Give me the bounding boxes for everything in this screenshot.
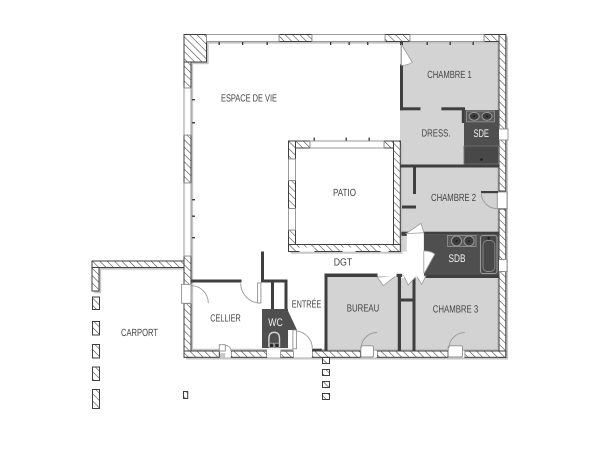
- svg-text:SDE: SDE: [473, 128, 489, 140]
- svg-text:BUREAU: BUREAU: [347, 304, 380, 315]
- svg-text:DGT: DGT: [334, 258, 353, 269]
- svg-text:CHAMBRE 3: CHAMBRE 3: [433, 305, 479, 316]
- svg-text:SDB: SDB: [449, 253, 466, 265]
- svg-text:ENTRÉE: ENTRÉE: [292, 298, 322, 311]
- svg-text:CHAMBRE 1: CHAMBRE 1: [427, 70, 472, 81]
- svg-text:PATIO: PATIO: [333, 188, 356, 199]
- svg-text:CARPORT: CARPORT: [121, 328, 158, 339]
- svg-text:ESPACE DE VIE: ESPACE DE VIE: [221, 94, 277, 105]
- svg-text:CHAMBRE 2: CHAMBRE 2: [431, 193, 476, 204]
- svg-text:DRESS.: DRESS.: [422, 129, 451, 140]
- svg-text:WC: WC: [268, 317, 283, 329]
- svg-text:CELLIER: CELLIER: [210, 314, 241, 325]
